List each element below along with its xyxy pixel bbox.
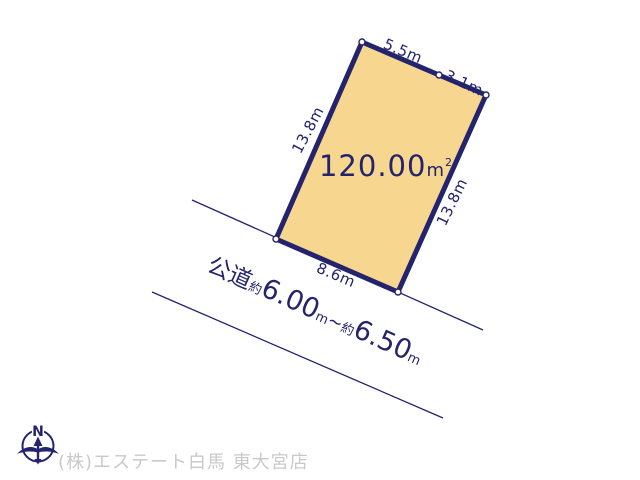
vertex-marker — [483, 92, 489, 98]
land-plot-diagram: N 5.5m 3.1m 13.8m 13.8m 8.6m 120.00m2 公道… — [0, 0, 640, 480]
vertex-marker — [359, 39, 365, 45]
vertex-marker — [273, 236, 279, 242]
compass-north-label: N — [32, 424, 44, 440]
plot-area-value: 120.00 — [319, 149, 426, 183]
diagram-drawing: N — [0, 0, 640, 480]
vertex-marker — [395, 289, 401, 295]
company-watermark: (株)エステート白馬 東大宮店 — [58, 448, 309, 474]
north-compass-icon: N — [17, 424, 59, 465]
vertex-marker — [436, 72, 442, 78]
plot-area-unit: m2 — [426, 160, 453, 181]
plot-area-label: 120.00m2 — [319, 149, 453, 183]
